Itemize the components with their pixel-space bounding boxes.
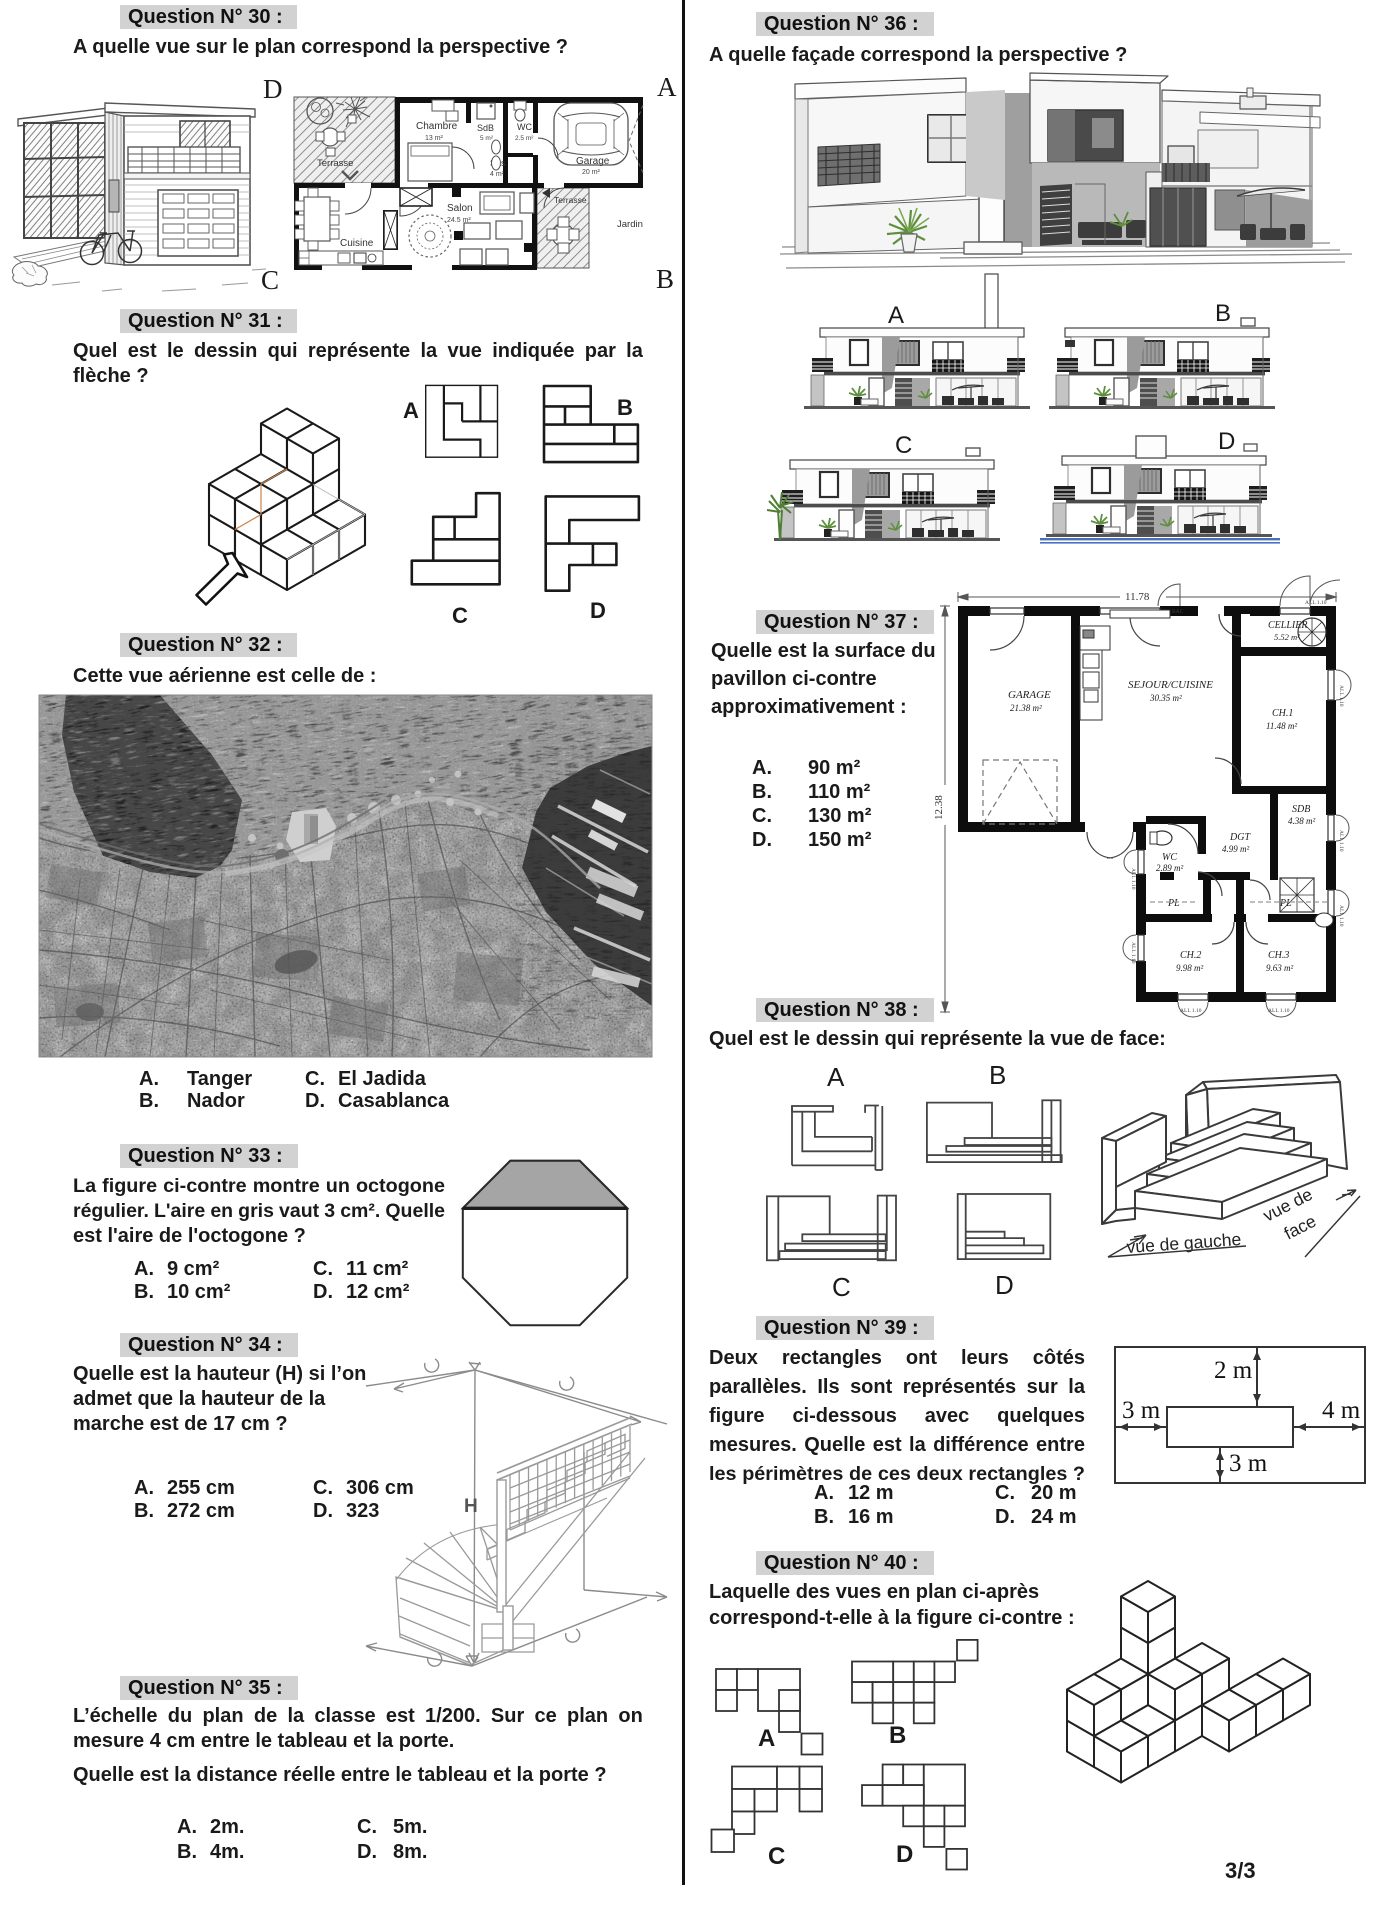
svg-text:ALL 1.10: ALL 1.10: [1305, 600, 1327, 606]
svg-text:ALL 1.10: ALL 1.10: [1130, 942, 1136, 964]
svg-text:GARAGE: GARAGE: [1008, 689, 1051, 701]
svg-text:Cuisine: Cuisine: [340, 238, 374, 249]
svg-text:Terrasse: Terrasse: [554, 195, 587, 205]
svg-text:CH.2: CH.2: [1180, 950, 1201, 961]
svg-text:Salon: Salon: [447, 203, 473, 214]
svg-text:ALL 1.10: ALL 1.10: [1180, 1008, 1202, 1014]
svg-text:12.38: 12.38: [933, 795, 945, 820]
svg-text:SDB: SDB: [1292, 804, 1310, 815]
svg-text:30.35 m²: 30.35 m²: [1149, 693, 1182, 703]
svg-text:Chambre: Chambre: [416, 121, 458, 132]
svg-text:5 m²: 5 m²: [480, 135, 494, 142]
svg-text:H: H: [464, 1496, 478, 1517]
svg-text:11.78: 11.78: [1125, 591, 1150, 603]
svg-text:20 m²: 20 m²: [582, 169, 601, 176]
svg-text:2.5 m²: 2.5 m²: [515, 135, 534, 142]
svg-text:SdB: SdB: [477, 123, 494, 133]
svg-text:ALL 1.10: ALL 1.10: [1268, 1008, 1290, 1014]
svg-text:ALL 1.10: ALL 1.10: [1338, 685, 1344, 707]
svg-text:4 m²: 4 m²: [490, 171, 505, 178]
svg-text:vue de gauche: vue de gauche: [1126, 1229, 1242, 1257]
svg-text:4.99 m²: 4.99 m²: [1222, 844, 1249, 854]
svg-text:WC: WC: [1162, 852, 1177, 863]
svg-text:11.48 m²: 11.48 m²: [1266, 721, 1297, 731]
svg-text:ALL 1.10: ALL 1.10: [1338, 905, 1344, 927]
svg-text:CELLIER: CELLIER: [1268, 620, 1307, 631]
svg-text:BAC: BAC: [1172, 609, 1184, 615]
svg-text:CH.1: CH.1: [1272, 708, 1293, 719]
svg-text:13 m²: 13 m²: [425, 135, 444, 142]
svg-text:4.38 m²: 4.38 m²: [1288, 816, 1315, 826]
svg-text:Terrasse: Terrasse: [317, 158, 353, 169]
svg-text:5.52 m²: 5.52 m²: [1274, 632, 1300, 642]
svg-text:PL: PL: [1167, 898, 1180, 909]
svg-text:WC: WC: [517, 122, 532, 132]
svg-text:ALL 1.10: ALL 1.10: [1338, 830, 1344, 852]
svg-text:ALL 1.10: ALL 1.10: [1130, 868, 1136, 890]
svg-text:SEJOUR/CUISINE: SEJOUR/CUISINE: [1128, 679, 1213, 691]
svg-text:2.89 m²: 2.89 m²: [1156, 863, 1183, 873]
svg-text:9.98 m²: 9.98 m²: [1176, 963, 1203, 973]
svg-text:PL: PL: [1279, 898, 1292, 909]
svg-text:CH.3: CH.3: [1268, 950, 1289, 961]
svg-text:Jardin: Jardin: [617, 219, 643, 230]
svg-text:DGT: DGT: [1229, 832, 1251, 843]
svg-text:21.38 m²: 21.38 m²: [1010, 703, 1042, 713]
svg-text:9.63 m²: 9.63 m²: [1266, 963, 1293, 973]
